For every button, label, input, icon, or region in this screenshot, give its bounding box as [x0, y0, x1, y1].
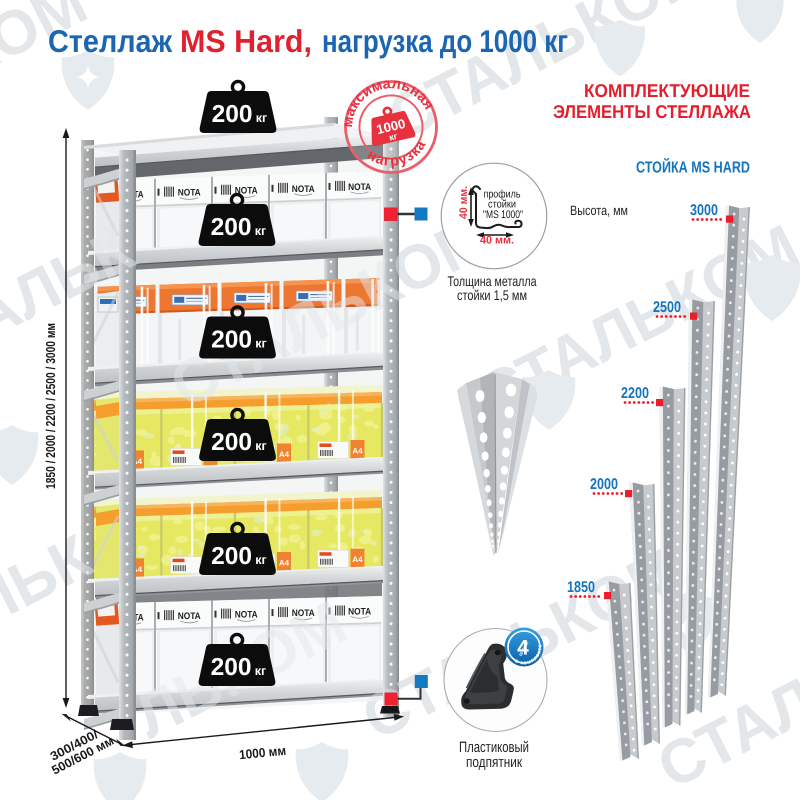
- svg-text:кг: кг: [256, 111, 267, 125]
- svg-text:кг: кг: [255, 337, 266, 351]
- svg-text:200: 200: [211, 327, 252, 354]
- svg-text:200: 200: [211, 654, 252, 681]
- svg-text:200: 200: [211, 214, 252, 241]
- svg-text:КОМПЛЕКТУЮЩИЕ: КОМПЛЕКТУЮЩИЕ: [584, 80, 750, 101]
- svg-text:200: 200: [212, 101, 253, 128]
- svg-text:2500: 2500: [653, 299, 681, 316]
- svg-text:кг: кг: [255, 664, 266, 678]
- svg-text:СТОЙКА MS HARD: СТОЙКА MS HARD: [636, 158, 750, 177]
- svg-text:200: 200: [211, 543, 252, 570]
- svg-text:1850: 1850: [567, 579, 595, 596]
- svg-text:40 мм.: 40 мм.: [480, 235, 514, 247]
- svg-text:"MS 1000": "MS 1000": [483, 209, 523, 221]
- svg-text:NOTA: NOTA: [292, 184, 315, 195]
- svg-text:A4: A4: [279, 450, 290, 459]
- svg-text:NOTA: NOTA: [178, 188, 201, 199]
- svg-text:Высота, мм: Высота, мм: [570, 203, 628, 218]
- svg-text:нагрузка до 1000 кг: нагрузка до 1000 кг: [322, 23, 568, 59]
- svg-text:NOTA: NOTA: [348, 607, 371, 618]
- svg-text:MS Hard,: MS Hard,: [180, 23, 312, 59]
- svg-text:NOTA: NOTA: [235, 610, 258, 621]
- svg-text:3000: 3000: [690, 202, 718, 219]
- svg-text:200: 200: [211, 429, 252, 456]
- svg-text:ЭЛЕМЕНТЫ СТЕЛЛАЖА: ЭЛЕМЕНТЫ СТЕЛЛАЖА: [553, 101, 751, 122]
- svg-text:A4: A4: [352, 555, 363, 564]
- svg-text:40 мм.: 40 мм.: [458, 186, 470, 219]
- svg-text:кг: кг: [255, 439, 266, 453]
- svg-text:A4: A4: [279, 558, 290, 567]
- svg-text:Стеллаж: Стеллаж: [48, 23, 173, 59]
- svg-text:стойки 1,5 мм: стойки 1,5 мм: [457, 287, 527, 303]
- svg-text:1850 / 2000 / 2200 / 2500 / 30: 1850 / 2000 / 2200 / 2500 / 3000 мм: [43, 323, 58, 489]
- svg-text:кг: кг: [255, 224, 266, 238]
- svg-text:кг: кг: [255, 553, 266, 567]
- svg-text:NOTA: NOTA: [178, 611, 201, 622]
- svg-text:A4: A4: [352, 446, 363, 455]
- svg-text:подпятник: подпятник: [466, 754, 522, 771]
- svg-text:2200: 2200: [621, 385, 649, 402]
- svg-text:2000: 2000: [590, 476, 618, 493]
- svg-text:NOTA: NOTA: [348, 182, 371, 193]
